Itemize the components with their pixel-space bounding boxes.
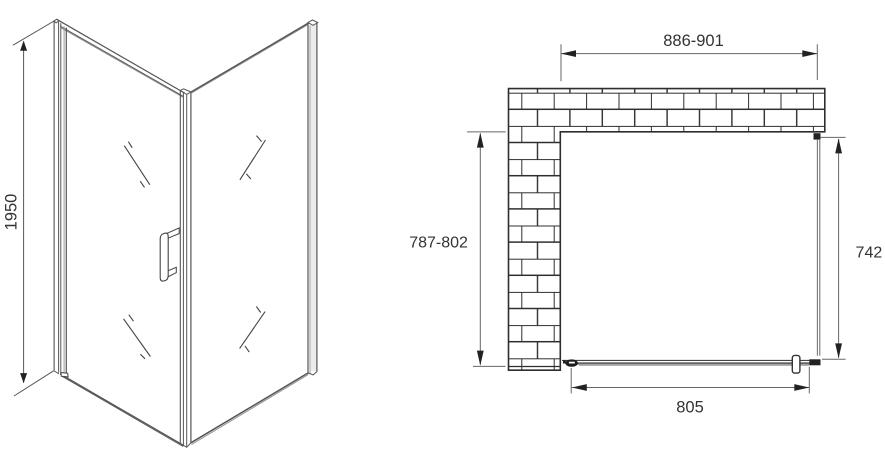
svg-text:886-901: 886-901 (663, 32, 724, 50)
svg-text:805: 805 (676, 399, 704, 417)
svg-text:787-802: 787-802 (409, 235, 468, 252)
svg-text:1950: 1950 (3, 194, 21, 231)
svg-text:742: 742 (856, 245, 883, 262)
